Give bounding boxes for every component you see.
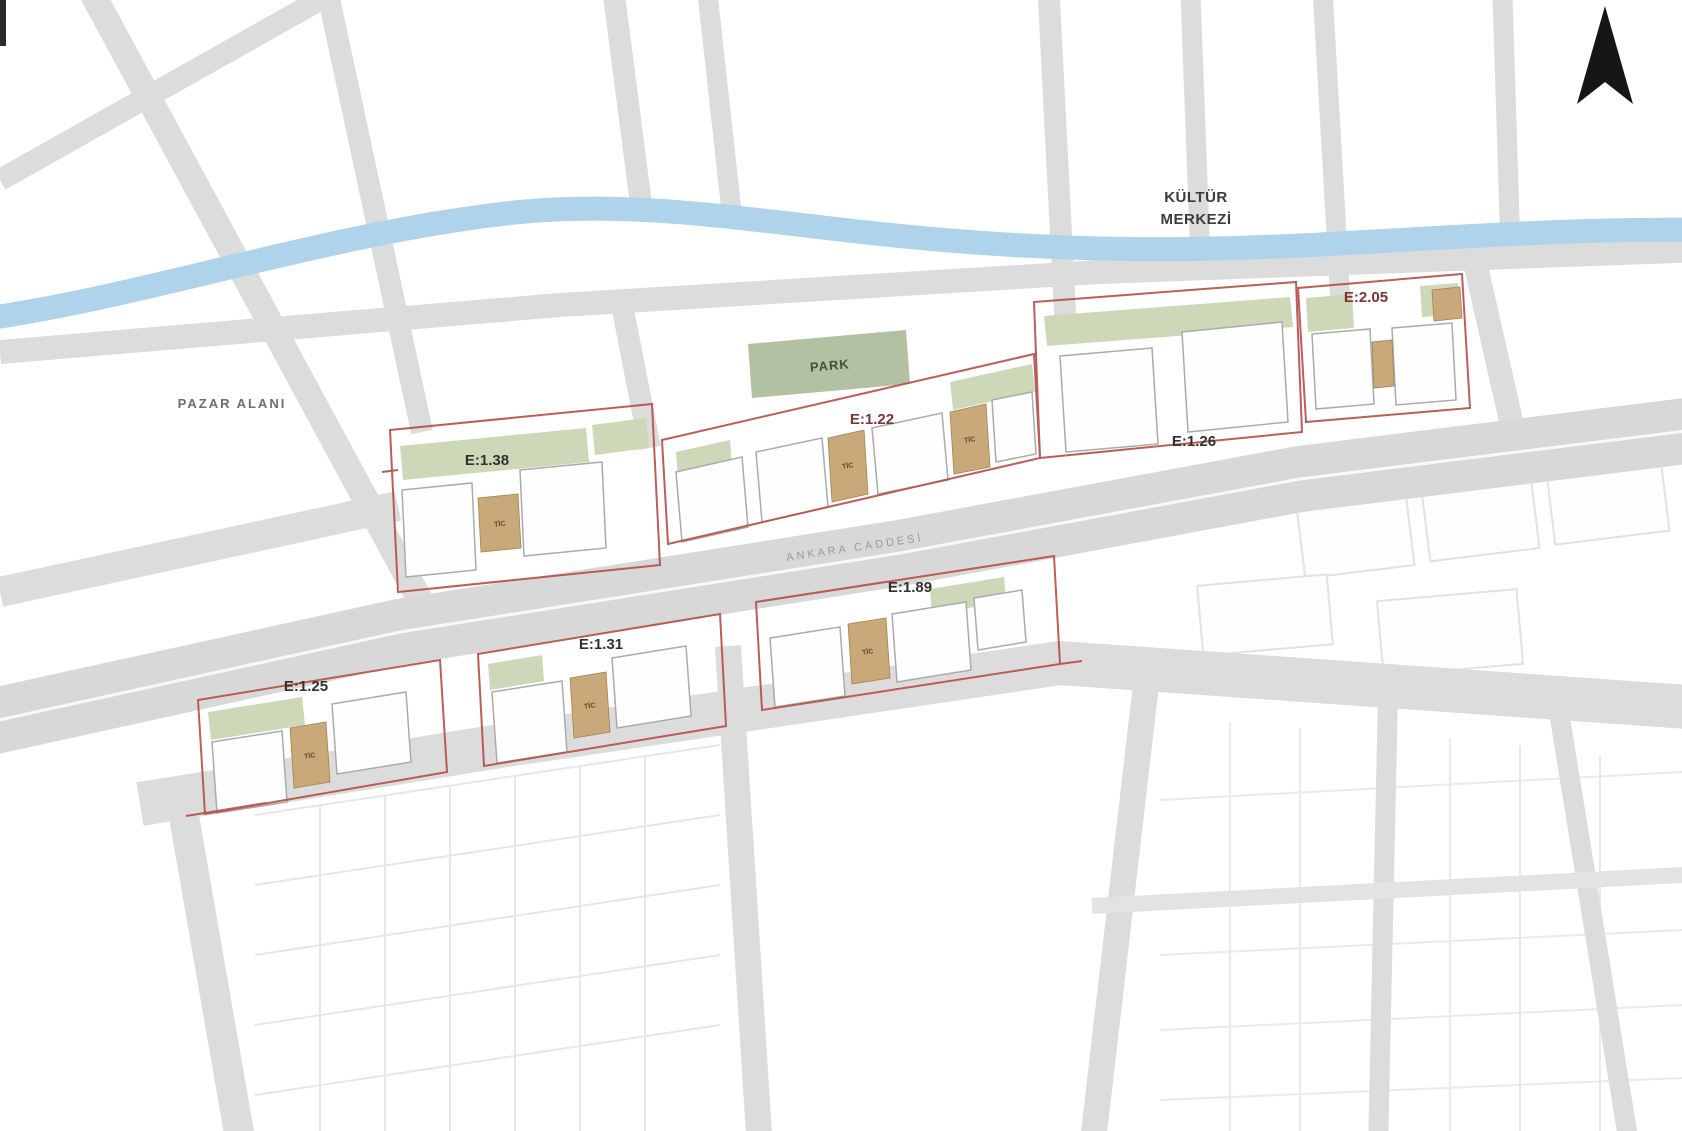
plan-canvas: TİC TİC TİC TİC TİC TİC E:1.38 E:1.22 E:… — [0, 0, 1682, 1131]
building — [1312, 329, 1374, 409]
commercial-block — [1432, 287, 1462, 321]
tic-label: TİC — [862, 647, 874, 656]
building — [992, 392, 1036, 462]
kultur-merkezi-label-line2: MERKEZİ — [1161, 211, 1232, 228]
building — [402, 483, 476, 577]
far-label-upper-2: E:1.22 — [850, 411, 894, 428]
pazar-alani-label: PAZAR ALANI — [178, 396, 287, 411]
site-plan-map: TİC TİC TİC TİC TİC TİC E:1.38 E:1.22 E:… — [0, 0, 1682, 1131]
building — [332, 692, 411, 774]
building — [770, 627, 845, 707]
far-label-lower-2: E:1.31 — [579, 636, 623, 653]
map-edge-mark — [0, 0, 6, 46]
building — [1392, 323, 1456, 405]
kultur-merkezi-label-line1: KÜLTÜR — [1164, 189, 1228, 206]
tic-label: TİC — [842, 461, 854, 470]
building — [212, 731, 287, 813]
far-label-lower-1: E:1.25 — [284, 678, 328, 695]
road-segment — [1378, 694, 1388, 1131]
road-segment — [1502, 0, 1510, 234]
far-label-lower-3: E:1.89 — [888, 579, 932, 596]
building — [1182, 322, 1288, 432]
commercial-block — [1372, 340, 1394, 388]
building — [520, 462, 606, 556]
building — [612, 646, 691, 728]
building — [492, 681, 567, 763]
tic-label: TİC — [964, 435, 976, 444]
tic-label: TİC — [584, 701, 596, 710]
building — [892, 602, 971, 682]
far-label-upper-1: E:1.38 — [465, 452, 509, 469]
building — [974, 590, 1026, 650]
building — [676, 457, 748, 542]
far-label-upper-3: E:1.26 — [1172, 433, 1216, 450]
tic-label: TİC — [304, 751, 316, 760]
building — [1060, 348, 1158, 452]
far-label-upper-4: E:2.05 — [1344, 289, 1388, 306]
tic-label: TİC — [494, 519, 506, 528]
